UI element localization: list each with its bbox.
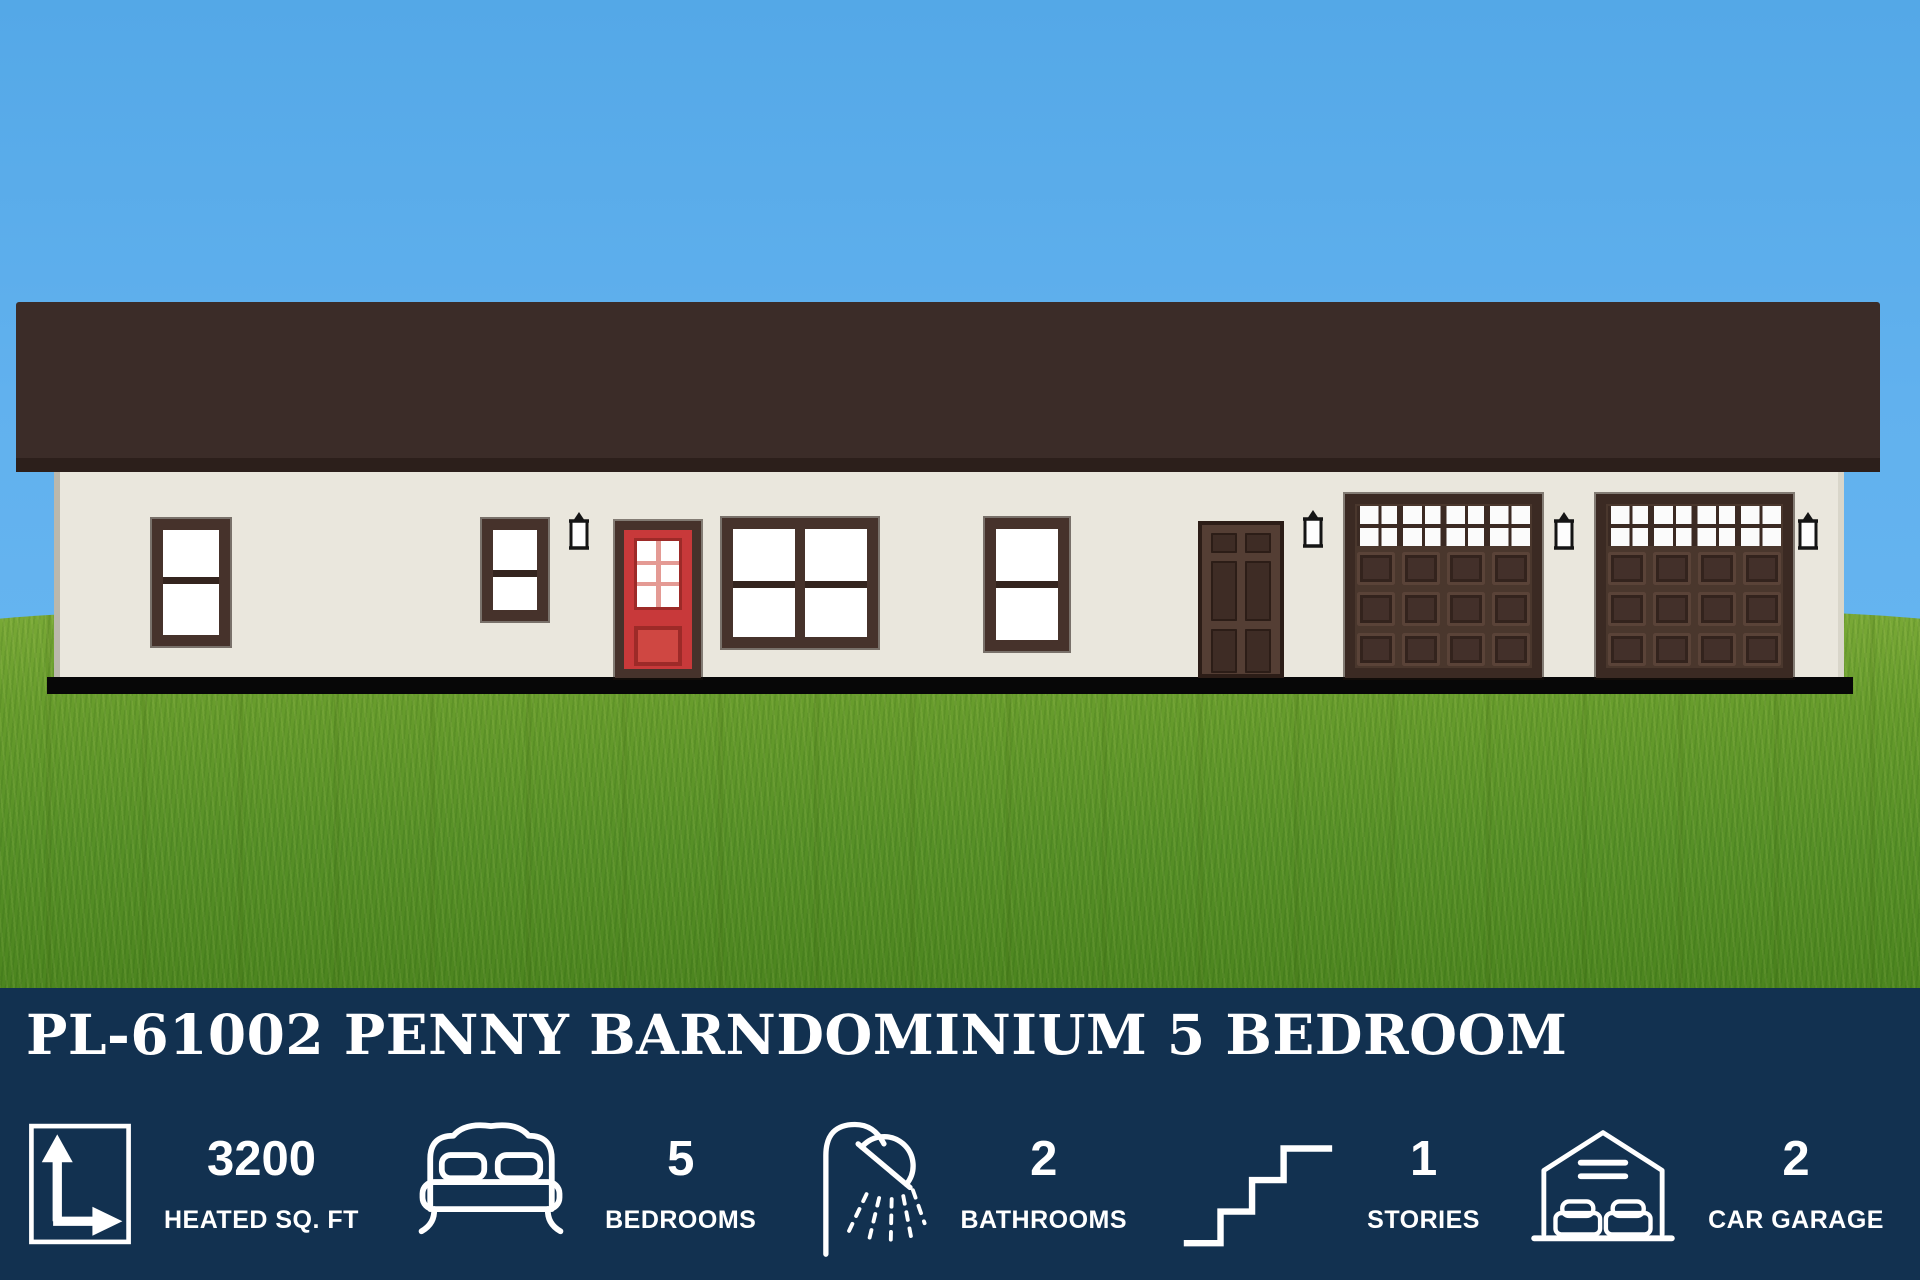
window-sash — [493, 570, 537, 577]
stat-heated-sqft: 3200 HEATED SQ. FT — [28, 1123, 359, 1245]
wall-lantern-icon — [566, 510, 592, 554]
window-sash — [996, 581, 1058, 588]
stat-label: BATHROOMS — [960, 1208, 1127, 1233]
house-wall — [54, 472, 1844, 677]
info-banner: PL-61002 PENNY BARNDOMINIUM 5 BEDROOM 32… — [0, 988, 1920, 1280]
window-sash — [163, 577, 219, 584]
stat-value: 1 — [1410, 1135, 1437, 1184]
stat-label: CAR GARAGE — [1708, 1208, 1884, 1233]
stat-label: HEATED SQ. FT — [164, 1208, 359, 1233]
stat-value: 2 — [1030, 1135, 1057, 1184]
wall-lantern-icon — [1795, 510, 1821, 554]
window-1 — [152, 519, 230, 646]
stat-stories: 1 STORIES — [1177, 1115, 1480, 1253]
stat-value: 3200 — [207, 1135, 316, 1184]
stats-row: 3200 HEATED SQ. FT 5 BEDROOMS — [0, 1096, 1920, 1272]
stairs-icon — [1177, 1115, 1335, 1253]
window-4 — [985, 518, 1069, 651]
front-door — [615, 521, 701, 678]
page-title: PL-61002 PENNY BARNDOMINIUM 5 BEDROOM — [26, 1002, 1567, 1067]
window-2 — [482, 519, 548, 621]
wall-lantern-icon — [1551, 510, 1577, 554]
garage-door-1 — [1345, 494, 1542, 678]
window-3 — [722, 518, 878, 648]
stat-value: 5 — [667, 1135, 694, 1184]
stat-value: 2 — [1782, 1135, 1809, 1184]
house-foundation — [47, 677, 1853, 694]
area-measure-icon — [28, 1123, 132, 1245]
garage-window-band — [1357, 506, 1530, 546]
stat-bedrooms: 5 BEDROOMS — [409, 1116, 756, 1252]
wall-lantern-icon — [1300, 508, 1326, 552]
garage-window-band — [1608, 506, 1781, 546]
stat-label: BEDROOMS — [605, 1208, 756, 1233]
shower-icon — [806, 1109, 928, 1259]
stat-car-garage: 2 CAR GARAGE — [1530, 1120, 1884, 1248]
stat-label: STORIES — [1367, 1208, 1480, 1233]
stat-bathrooms: 2 BATHROOMS — [806, 1109, 1127, 1259]
garage-door-2 — [1596, 494, 1793, 678]
bed-icon — [409, 1116, 573, 1252]
front-door-panel — [634, 626, 682, 666]
house-plan-graphic: PL-61002 PENNY BARNDOMINIUM 5 BEDROOM 32… — [0, 0, 1920, 1280]
front-door-window — [634, 538, 682, 610]
entry-door — [1198, 521, 1284, 678]
house-roof — [16, 302, 1880, 472]
garage-icon — [1530, 1120, 1676, 1248]
